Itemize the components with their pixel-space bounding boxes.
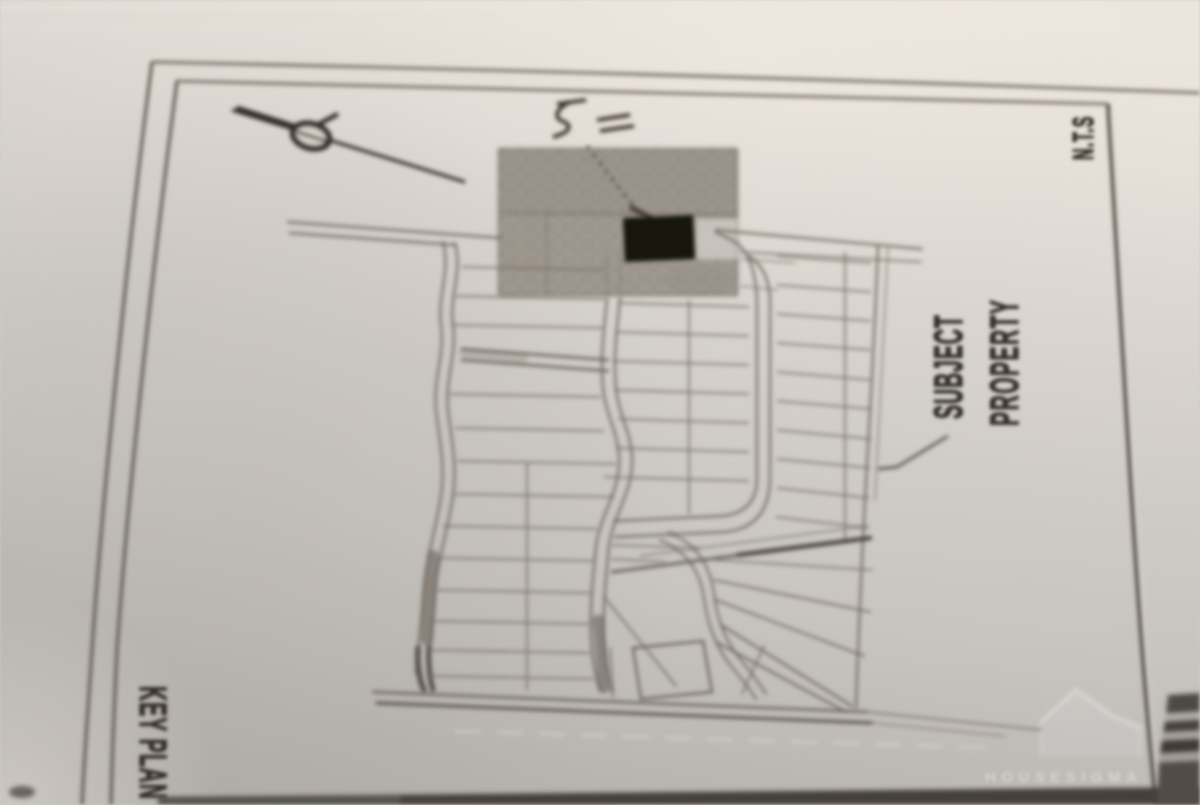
svg-text:SUBJECT: SUBJECT [926,315,971,419]
svg-text:HOUSESIGMA: HOUSESIGMA [985,769,1143,786]
svg-text:PROPERTY: PROPERTY [982,299,1027,426]
svg-text:KEY PLAN: KEY PLAN [131,686,173,800]
svg-text:N.T.S: N.T.S [1067,116,1099,160]
